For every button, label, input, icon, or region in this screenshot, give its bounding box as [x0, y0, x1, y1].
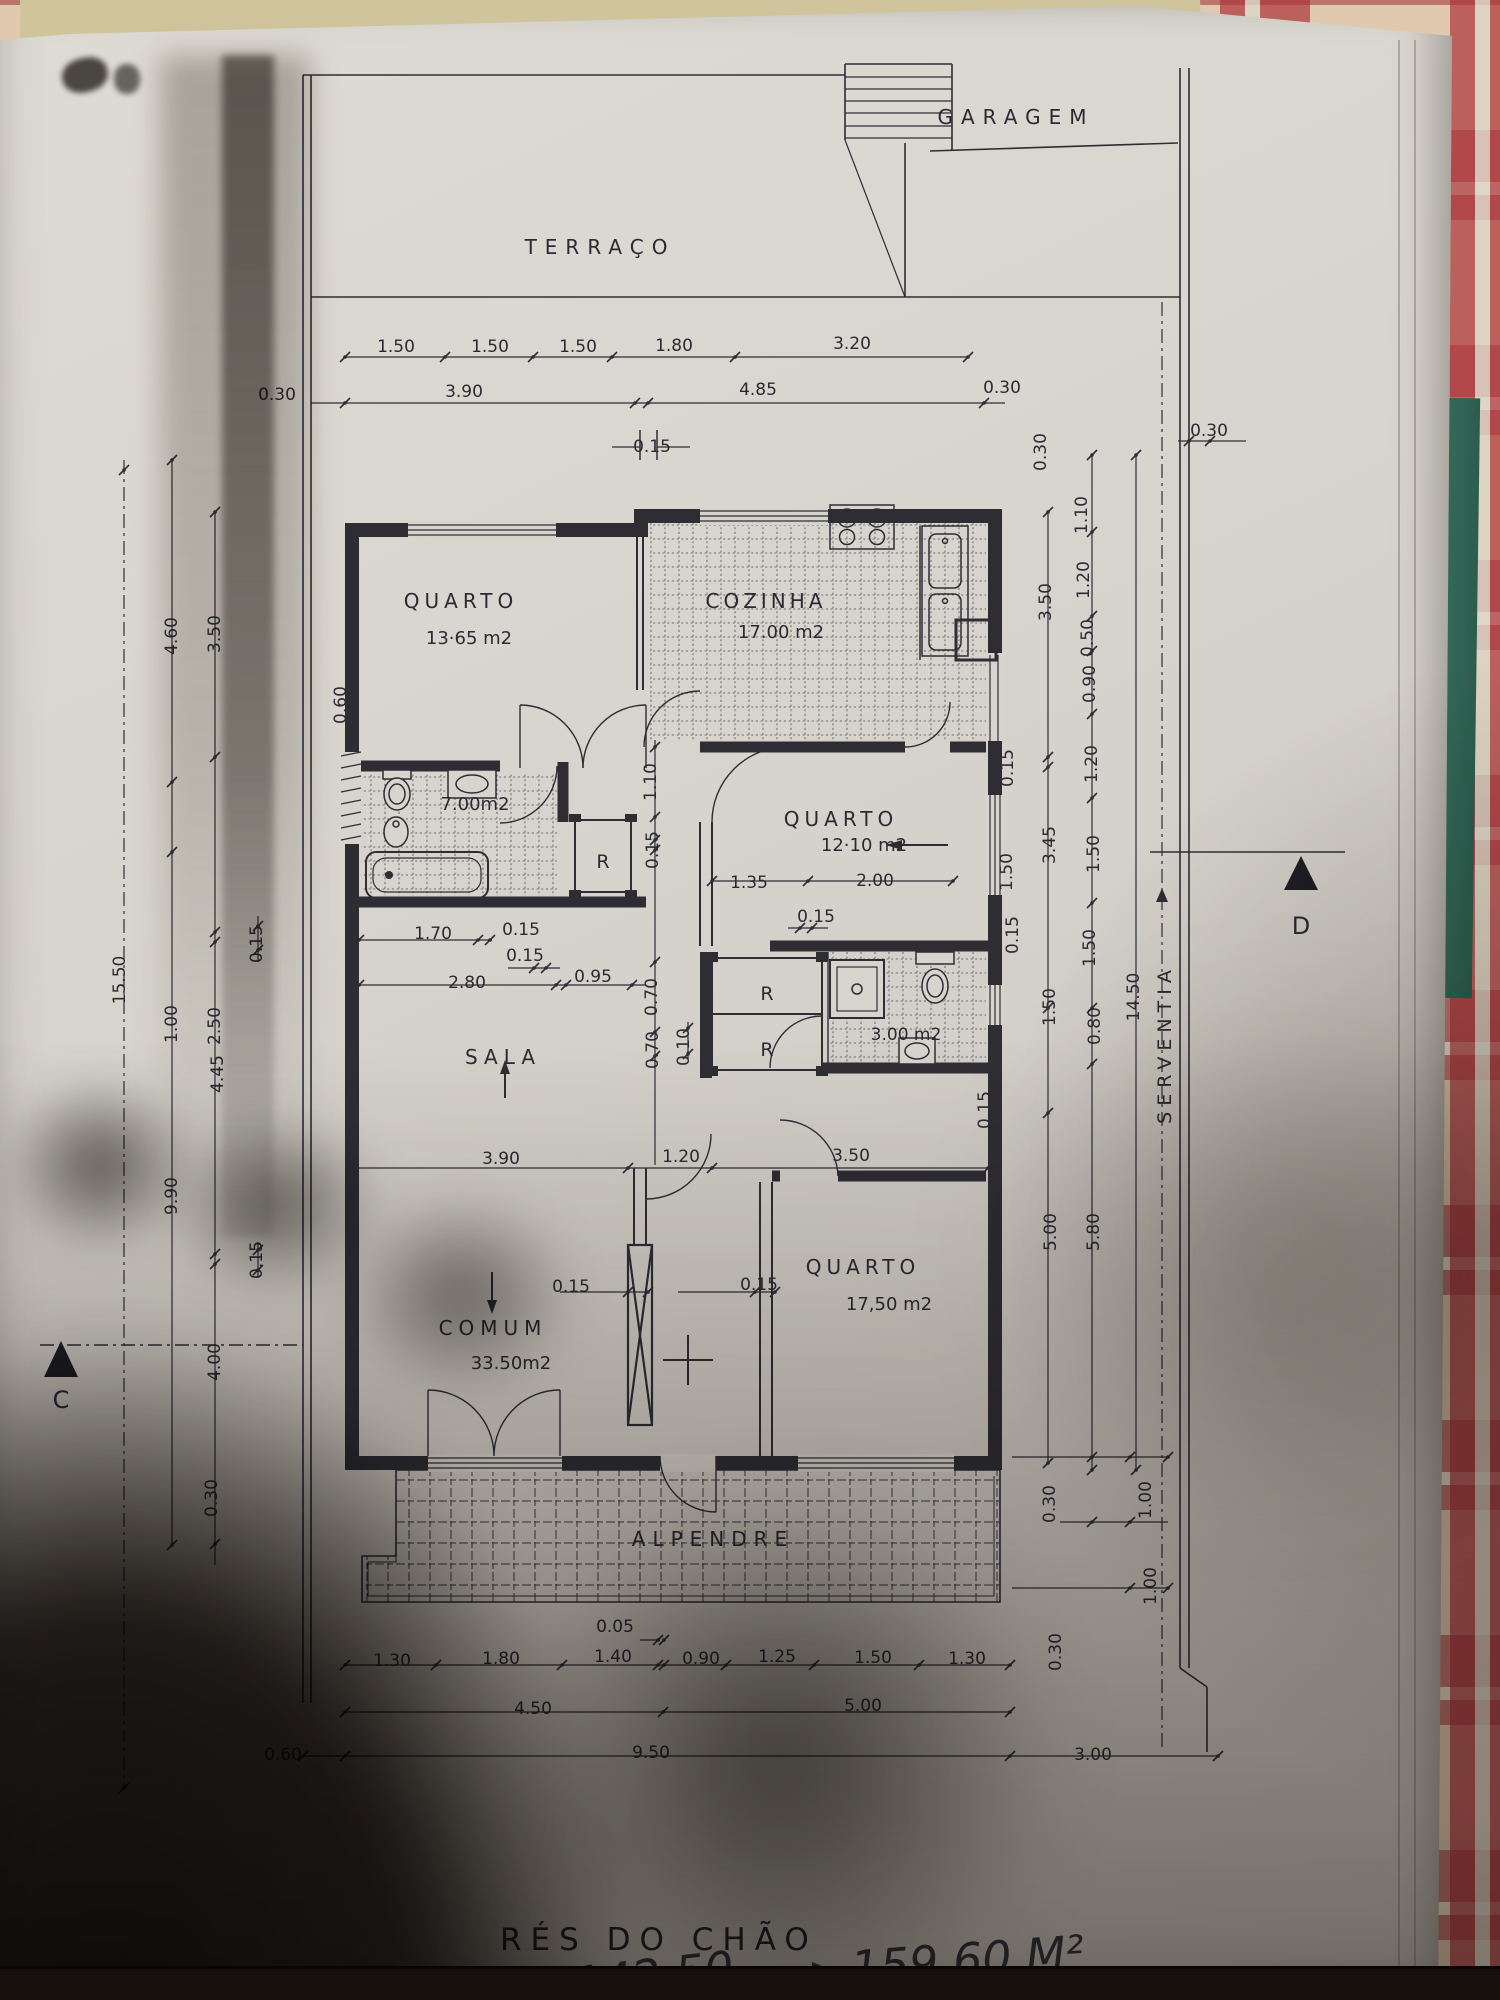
dim-label: 13·65 m2 — [426, 628, 512, 649]
dim-label: 0.15 — [506, 946, 544, 966]
window-wc-right — [986, 985, 1004, 1025]
dim-label: 4.85 — [739, 380, 777, 400]
dim-label: 1.50 — [1084, 835, 1104, 873]
window-bath-left — [341, 752, 361, 844]
label-serventia: SERVENTIA — [1154, 964, 1176, 1124]
wc-door — [770, 1016, 822, 1068]
section-marker-c: C — [53, 1386, 70, 1414]
dim-label: 1.50 — [1040, 988, 1060, 1026]
dim-label: 1.35 — [730, 873, 768, 893]
dim-label: 4.00 — [205, 1343, 225, 1381]
label-garagem: GARAGEM — [938, 105, 1095, 129]
dim-label: 0.15 — [797, 907, 835, 927]
dim-label: 1.20 — [1074, 561, 1094, 599]
dim-label: 1.25 — [758, 1647, 796, 1667]
dim-label: 2.80 — [448, 973, 486, 993]
window-kitchen-top — [700, 507, 828, 525]
label-banho-area: 7.00m2 — [440, 794, 509, 815]
dimension-line — [640, 1635, 669, 1645]
label-closet-r1: R — [596, 851, 609, 873]
dim-label: 0.30 — [1190, 421, 1228, 441]
dim-label: 1.80 — [655, 336, 693, 356]
label-wc-area: 3.00 m2 — [871, 1025, 942, 1045]
label-quarto-1750: QUARTO — [806, 1255, 920, 1279]
dim-label: 5.00 — [1041, 1213, 1061, 1251]
label-quarto-1210: QUARTO — [784, 807, 898, 831]
dim-label: 5.80 — [1084, 1213, 1104, 1251]
dimension-line — [1131, 450, 1141, 1475]
dim-label: 0.30 — [983, 378, 1021, 398]
plan-line — [930, 143, 1178, 151]
dim-label: 0.30 — [1046, 1633, 1066, 1671]
dim-label: 3.20 — [833, 334, 871, 354]
dim-label: 0.95 — [574, 967, 612, 987]
dim-label: 0.15 — [643, 831, 663, 869]
label-cozinha: COZINHA — [706, 589, 827, 613]
dim-label: 1.50 — [471, 337, 509, 357]
dim-label: 1.30 — [373, 1651, 411, 1671]
dim-label: 3.90 — [482, 1149, 520, 1169]
dim-label: 3.90 — [445, 382, 483, 402]
ink-smudge — [114, 64, 140, 94]
dim-label: 17,50 m2 — [846, 1294, 932, 1315]
dim-label: 1.20 — [1082, 745, 1102, 783]
section-c-triangle — [44, 1341, 78, 1377]
door-kitchen-right — [986, 653, 1004, 741]
dim-label: 1.30 — [948, 1649, 986, 1669]
photo-of-floorplan: RÉS DO CHÃO 142,50 159.60 M² GARAGEMTERR… — [0, 0, 1500, 2000]
dimension-line — [340, 1660, 1015, 1670]
label-terraco: TERRAÇO — [524, 235, 676, 259]
dim-label: 0.50 — [1078, 619, 1098, 657]
dim-label: 5.00 — [844, 1696, 882, 1716]
annotations — [44, 840, 1318, 1377]
dim-label: 0.30 — [1031, 433, 1051, 471]
floorplan-drawing: RÉS DO CHÃO 142,50 159.60 M² GARAGEMTERR… — [0, 0, 1500, 2000]
dimension-line — [650, 740, 660, 1165]
toilet-tank-wc — [916, 952, 954, 964]
dim-label: 1.70 — [414, 924, 452, 944]
dim-label: 17.00 m2 — [738, 622, 824, 643]
dim-label: 3.50 — [205, 615, 225, 653]
dim-label: 0.70 — [643, 1031, 663, 1069]
dim-label: 1.50 — [1080, 929, 1100, 967]
dim-label: 9.50 — [632, 1743, 670, 1763]
dim-label: 3.00 — [1074, 1745, 1112, 1765]
plan-line — [845, 140, 905, 297]
label-sala: SALA — [465, 1045, 541, 1069]
toilet — [384, 778, 410, 810]
window-quarto-top — [408, 521, 556, 539]
dim-label: 3.50 — [832, 1146, 870, 1166]
dim-label: 1.50 — [377, 337, 415, 357]
dim-label: 0.90 — [682, 1649, 720, 1669]
dim-label: 4.45 — [208, 1055, 228, 1093]
dim-label: 0.15 — [975, 1091, 995, 1129]
dim-label: 33.50m2 — [471, 1353, 552, 1374]
dim-label: 2.50 — [205, 1007, 225, 1045]
dim-label: 0.15 — [633, 437, 671, 457]
dim-label: 0.15 — [740, 1275, 778, 1295]
dim-label: 1.50 — [997, 853, 1017, 891]
quarto12-door — [712, 747, 787, 822]
dim-label: 0.60 — [264, 1745, 302, 1765]
dim-label: 4.50 — [514, 1699, 552, 1719]
dim-label: 0.15 — [502, 920, 540, 940]
entry-door-right — [583, 705, 646, 768]
entry-door-left — [520, 705, 583, 768]
dim-label: 4.60 — [162, 617, 182, 655]
dim-label: 0.30 — [258, 385, 296, 405]
label-closet-r2: R — [760, 983, 773, 1005]
dim-label: 1.10 — [1072, 496, 1092, 534]
dim-label: 1.50 — [559, 337, 597, 357]
dim-label: 0.70 — [642, 978, 662, 1016]
dim-label: 15.50 — [110, 956, 130, 1005]
dim-label: 0.30 — [202, 1479, 222, 1517]
dim-label: 0.80 — [1085, 1007, 1105, 1045]
dim-label: 0.15 — [1003, 916, 1023, 954]
column-braced — [628, 1245, 652, 1425]
label-quarto-1365: QUARTO — [404, 589, 518, 613]
dim-label: 0.15 — [247, 1241, 267, 1279]
table-edge — [0, 1966, 1500, 2000]
dim-label: 1.00 — [162, 1005, 182, 1043]
plan-line — [1180, 1668, 1207, 1687]
section-d-triangle — [1284, 856, 1318, 890]
dim-label: 1.20 — [662, 1147, 700, 1167]
dim-label: 1.40 — [594, 1647, 632, 1667]
dim-label: 1.80 — [482, 1649, 520, 1669]
dimension-line — [1043, 507, 1053, 1468]
dim-label: 0.15 — [998, 749, 1018, 787]
dimension-line — [340, 1707, 1015, 1717]
dimension-line — [119, 460, 129, 1793]
dim-label: 1.50 — [854, 1648, 892, 1668]
dim-label: 9.90 — [162, 1177, 182, 1215]
toilet-wc — [922, 969, 948, 1003]
comum-arrow — [487, 1272, 497, 1314]
dim-label: 2.00 — [856, 871, 894, 891]
label-comum: COMUM — [439, 1316, 548, 1340]
section-marker-d: D — [1292, 912, 1310, 940]
dim-label: 0.15 — [552, 1277, 590, 1297]
dim-label: 14.50 — [1124, 973, 1144, 1022]
dim-label: 0.90 — [1080, 665, 1100, 703]
dim-label: 0.05 — [596, 1617, 634, 1637]
label-alpendre: ALPENDRE — [632, 1527, 794, 1551]
dim-label: 1.00 — [1141, 1567, 1161, 1605]
label-closet-r3: R — [760, 1039, 773, 1061]
french-door-comum — [428, 1390, 562, 1472]
dim-label: 12·10 m2 — [821, 835, 907, 856]
dim-label: 3.45 — [1040, 826, 1060, 864]
dim-label: 0.60 — [331, 686, 351, 724]
dim-label: 0.10 — [674, 1028, 694, 1066]
blueprint-paper: RÉS DO CHÃO 142,50 159.60 M² GARAGEMTERR… — [0, 0, 1460, 2000]
dim-label: 1.10 — [641, 763, 661, 801]
dim-label: 0.30 — [1040, 1485, 1060, 1523]
shower-tray — [830, 960, 884, 1018]
dim-label: 1.00 — [1136, 1481, 1156, 1519]
window-quarto17-bottom — [798, 1454, 954, 1472]
dimension-line — [311, 398, 1005, 408]
dim-label: 3.50 — [1036, 583, 1056, 621]
dim-label: 0.15 — [247, 925, 267, 963]
